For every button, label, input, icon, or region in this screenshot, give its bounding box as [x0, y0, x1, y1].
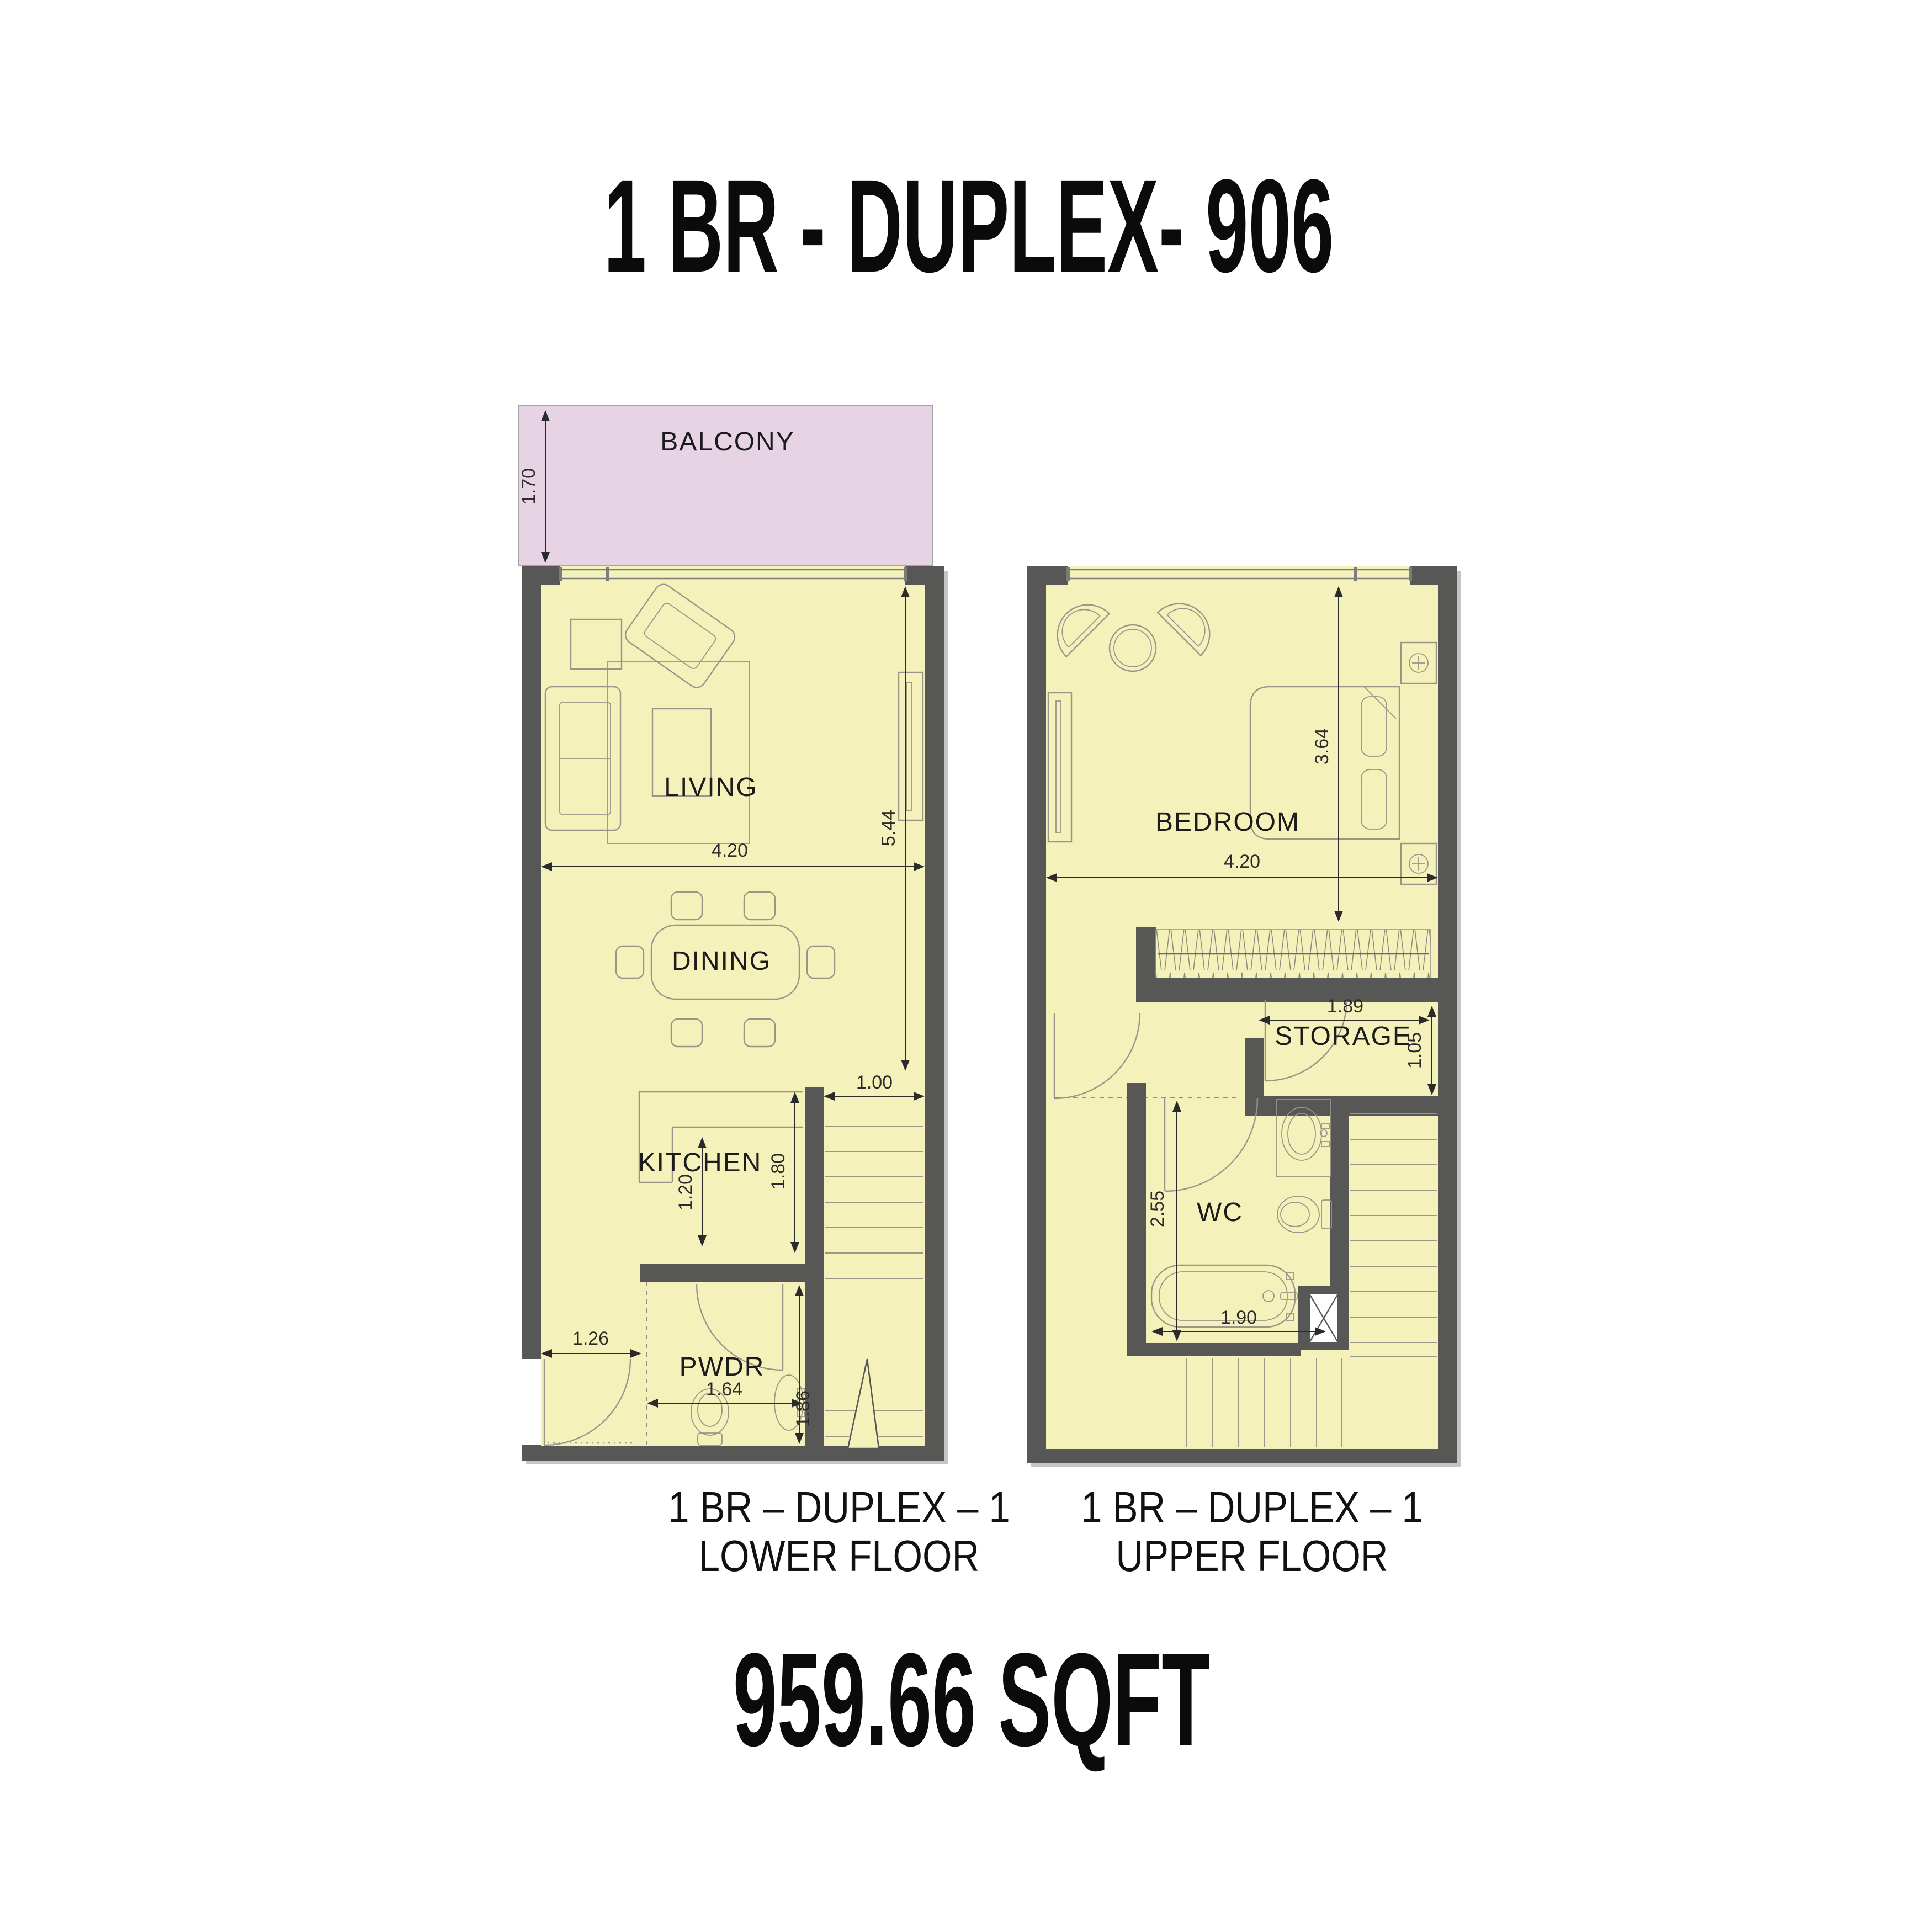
dim-bedroom-height: 3.64: [1312, 728, 1333, 765]
balcony-label: BALCONY: [660, 427, 794, 457]
lower-top-wall-stub-right: [905, 566, 944, 585]
dim-powder-width: 1.64: [706, 1379, 742, 1400]
wc-right-wall: [1330, 1096, 1349, 1288]
closet-left-wall: [1136, 927, 1156, 983]
upper-floor-plan: BEDROOM 3.64 4.20 STORAGE 1.89 1.05: [1027, 566, 1461, 1580]
living-label: LIVING: [664, 773, 757, 802]
lower-right-wall: [925, 566, 944, 1461]
dim-upper-width: 4.20: [1224, 851, 1260, 872]
lower-caption-line2: LOWER FLOOR: [699, 1531, 979, 1580]
upper-right-shadow: [1457, 571, 1461, 1465]
upper-right-wall: [1438, 566, 1457, 1463]
lower-left-wall: [522, 566, 541, 1461]
upper-top-wall-stub-right: [1410, 566, 1457, 585]
powder-label: PWDR: [680, 1352, 765, 1382]
wc-left-wall: [1127, 1083, 1146, 1356]
dim-wc-height: 2.55: [1147, 1191, 1168, 1227]
upper-bottom-shadow: [1031, 1463, 1461, 1467]
page-title: 1 BR - DUPLEX- 906: [604, 151, 1334, 300]
dim-counter-width: 1.20: [675, 1174, 696, 1211]
upper-interior: [1027, 566, 1457, 1463]
svg-text:LOWER FLOOR: LOWER FLOOR: [699, 1531, 979, 1580]
closet-bottom-wall: [1136, 978, 1457, 1002]
entry-opening: [522, 1359, 541, 1445]
lower-top-wall-stub-left: [522, 566, 560, 585]
area-total: 959.66 SQFT: [733, 1626, 1210, 1774]
storage-label: STORAGE: [1275, 1022, 1411, 1051]
dim-kitchen-depth: 1.80: [768, 1153, 789, 1190]
dim-balcony-depth: 1.70: [518, 468, 539, 505]
lower-bottom-wall: [522, 1446, 944, 1461]
kitchen-powder-divider-wall: [640, 1264, 824, 1282]
dining-label: DINING: [672, 947, 771, 976]
floor-plan-sheet: 1 BR - DUPLEX- 906 BALCONY 1.70: [0, 0, 1932, 1932]
upper-caption-line1: 1 BR – DUPLEX – 1: [1081, 1482, 1423, 1532]
svg-text:UPPER FLOOR: UPPER FLOOR: [1116, 1531, 1388, 1580]
area-text: 959.66 SQFT: [733, 1626, 1210, 1774]
service-shaft: [1298, 1286, 1349, 1350]
dim-living-height: 5.44: [878, 810, 899, 846]
svg-text:1 BR – DUPLEX – 1: 1 BR – DUPLEX – 1: [668, 1482, 1010, 1532]
title-text: 1 BR - DUPLEX- 906: [604, 151, 1334, 300]
kitchen-label: KITCHEN: [638, 1148, 762, 1177]
dim-lower-width: 4.20: [712, 840, 748, 861]
upper-left-wall: [1027, 566, 1046, 1463]
dim-powder-depth: 1.86: [793, 1390, 814, 1427]
dim-stair-width: 1.00: [856, 1072, 893, 1093]
lower-caption-line1: 1 BR – DUPLEX – 1: [668, 1482, 1010, 1532]
dim-entry-width: 1.26: [572, 1328, 609, 1349]
lower-bottom-shadow: [526, 1461, 948, 1464]
wc-label: WC: [1197, 1198, 1243, 1227]
lower-floor-plan: BALCONY 1.70: [518, 406, 1010, 1580]
upper-bottom-wall: [1027, 1449, 1457, 1463]
upper-top-wall-stub-left: [1027, 566, 1068, 585]
dim-storage-width: 1.89: [1327, 996, 1363, 1017]
bedroom-label: BEDROOM: [1155, 808, 1300, 837]
lower-interior: [522, 566, 944, 1461]
upper-caption-line2: UPPER FLOOR: [1116, 1531, 1388, 1580]
lower-right-shadow: [944, 571, 948, 1462]
dim-wc-width: 1.90: [1220, 1307, 1257, 1328]
dim-storage-depth: 1.05: [1404, 1032, 1425, 1069]
wc-bottom-wall: [1127, 1343, 1301, 1356]
floor-plan-canvas: 1 BR - DUPLEX- 906 BALCONY 1.70: [0, 0, 1932, 1932]
svg-text:1 BR – DUPLEX – 1: 1 BR – DUPLEX – 1: [1081, 1482, 1423, 1532]
